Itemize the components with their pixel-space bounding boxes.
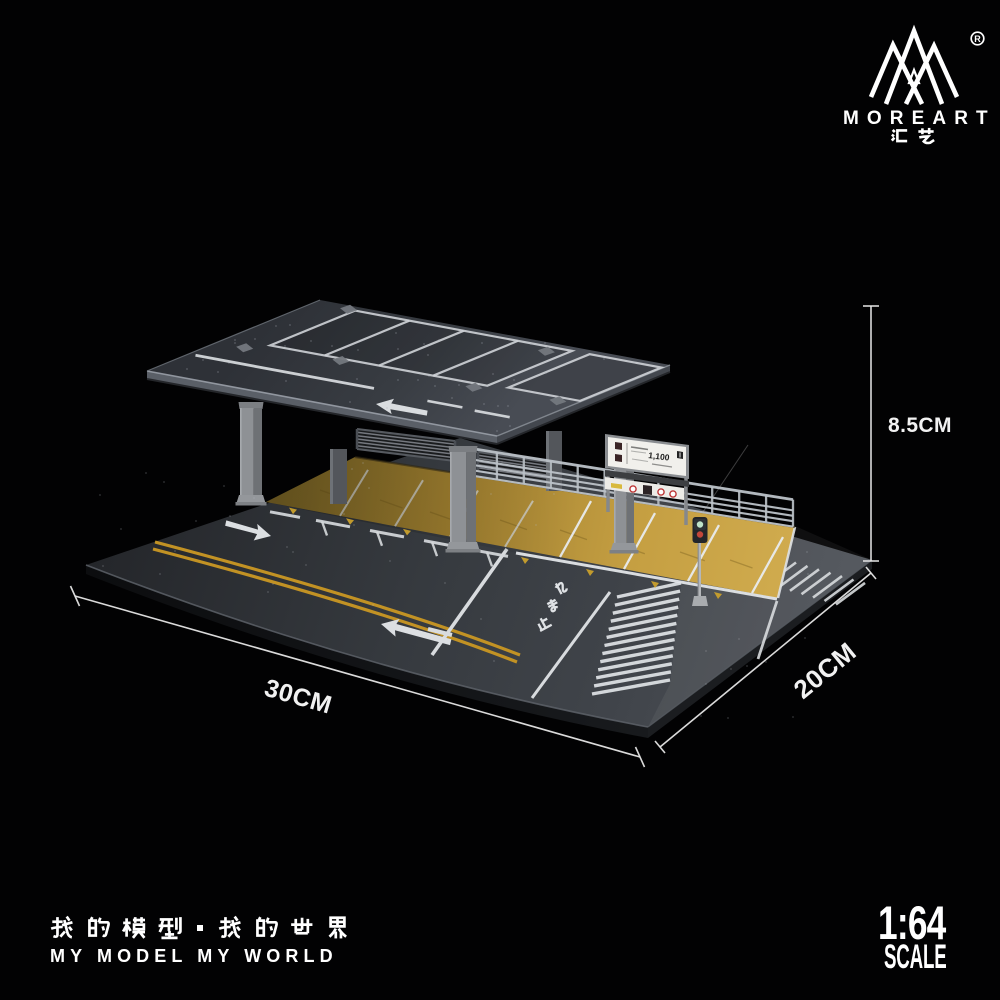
svg-text:MOREART: MOREART <box>843 108 996 129</box>
svg-text:R: R <box>974 34 981 44</box>
svg-text:8.5CM: 8.5CM <box>888 414 952 437</box>
svg-text:MY MODEL MY WORLD: MY MODEL MY WORLD <box>50 946 338 966</box>
svg-text:SCALE: SCALE <box>884 937 947 975</box>
